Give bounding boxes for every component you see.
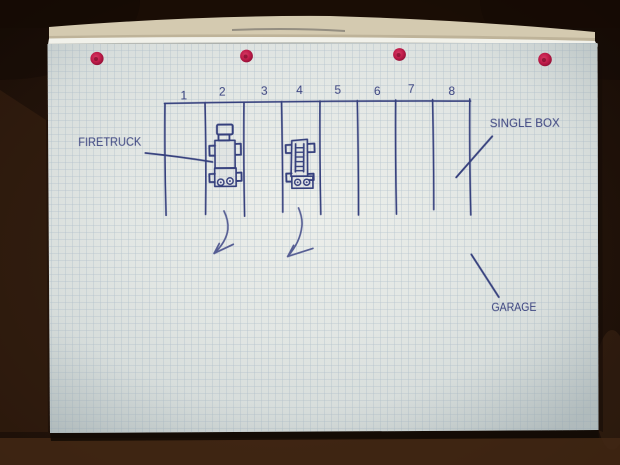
svg-text:GARAGE: GARAGE <box>491 300 536 314</box>
svg-text:1: 1 <box>180 88 187 102</box>
svg-text:4: 4 <box>296 83 303 97</box>
svg-text:FIRETRUCK: FIRETRUCK <box>78 134 141 148</box>
svg-text:SINGLE BOX: SINGLE BOX <box>490 116 560 130</box>
svg-text:3: 3 <box>261 84 268 98</box>
svg-text:2: 2 <box>219 85 226 99</box>
svg-text:6: 6 <box>374 84 381 98</box>
svg-text:7: 7 <box>408 82 415 96</box>
svg-text:8: 8 <box>448 84 455 98</box>
svg-text:5: 5 <box>334 83 341 97</box>
